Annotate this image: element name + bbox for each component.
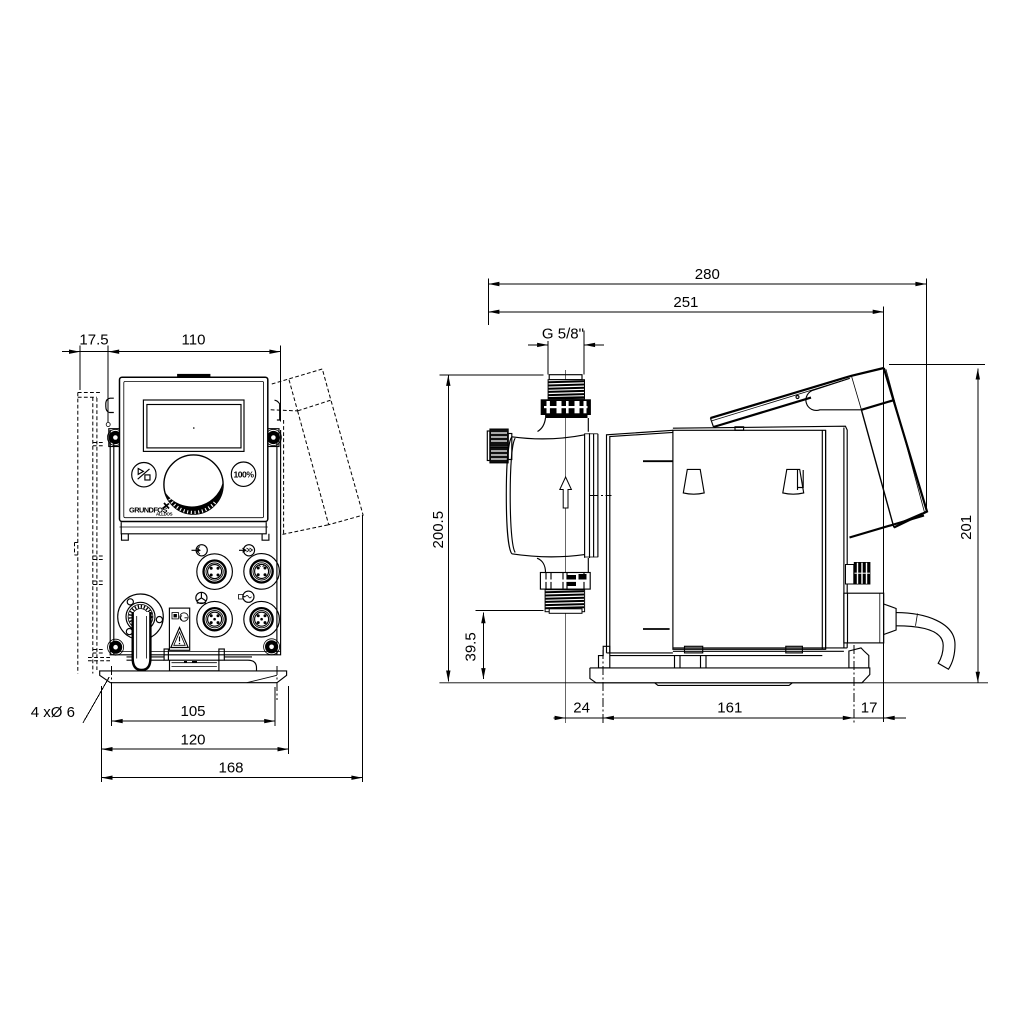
svg-text:4 xØ 6: 4 xØ 6 bbox=[31, 704, 75, 721]
svg-text:161: 161 bbox=[717, 700, 742, 717]
svg-text:39.5: 39.5 bbox=[463, 632, 480, 661]
svg-text:ALLDOS: ALLDOS bbox=[156, 511, 173, 516]
svg-text:280: 280 bbox=[695, 266, 720, 283]
svg-text:251: 251 bbox=[673, 294, 698, 311]
svg-text:200.5: 200.5 bbox=[430, 511, 447, 549]
svg-text:120: 120 bbox=[180, 732, 205, 749]
svg-text:110: 110 bbox=[182, 332, 206, 349]
svg-text:17.5: 17.5 bbox=[79, 332, 108, 349]
svg-text:105: 105 bbox=[180, 703, 205, 720]
svg-text:17: 17 bbox=[861, 700, 878, 717]
svg-text:201: 201 bbox=[958, 515, 975, 540]
svg-text:100%: 100% bbox=[234, 469, 255, 479]
svg-text:G 5/8": G 5/8" bbox=[542, 326, 584, 343]
svg-text:24: 24 bbox=[573, 700, 590, 717]
svg-text:168: 168 bbox=[218, 760, 243, 777]
